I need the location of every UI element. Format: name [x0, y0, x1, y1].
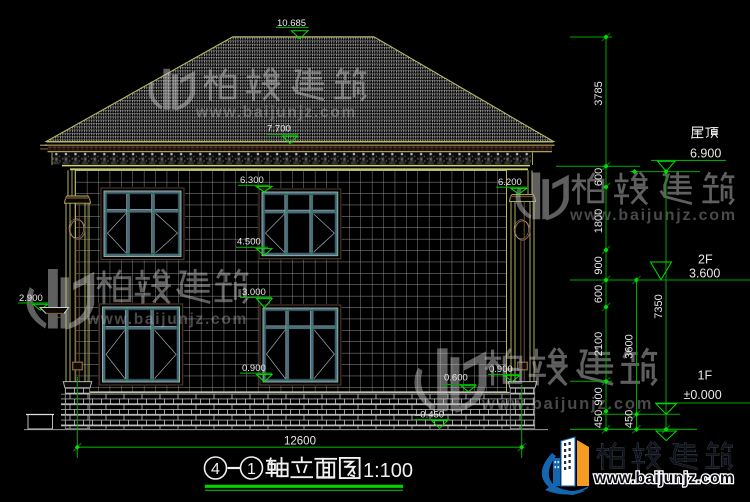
svg-text:7.700: 7.700 [267, 124, 291, 135]
svg-text:4: 4 [211, 461, 220, 478]
svg-text:0.600: 0.600 [444, 373, 468, 384]
svg-text:600: 600 [593, 168, 605, 186]
svg-text:6.300: 6.300 [240, 175, 264, 186]
svg-text:1: 1 [247, 461, 256, 478]
svg-text:–0.450: –0.450 [415, 410, 444, 421]
svg-text:www.baijunjz.com: www.baijunjz.com [195, 104, 357, 121]
svg-text:7350: 7350 [653, 294, 665, 318]
svg-text:450: 450 [624, 410, 636, 428]
svg-text:3.600: 3.600 [689, 267, 720, 281]
svg-text:1:100: 1:100 [363, 460, 413, 482]
svg-text:2100: 2100 [593, 332, 605, 356]
svg-text:4.500: 4.500 [237, 237, 261, 248]
svg-text:0.900: 0.900 [242, 363, 266, 374]
svg-text:3.000: 3.000 [242, 287, 266, 298]
svg-text:600: 600 [593, 285, 605, 303]
svg-text:www.baijunjz.com: www.baijunjz.com [593, 470, 734, 487]
svg-text:6.900: 6.900 [690, 147, 721, 161]
svg-text:3785: 3785 [593, 81, 605, 105]
svg-text:2F: 2F [698, 253, 713, 267]
svg-text:1F: 1F [698, 369, 713, 383]
svg-text:12600: 12600 [284, 436, 316, 448]
svg-text:3600: 3600 [624, 334, 636, 358]
svg-text:1800: 1800 [593, 209, 605, 233]
svg-text:6.200: 6.200 [498, 177, 522, 188]
svg-text:900: 900 [593, 256, 605, 274]
svg-text:0.900: 0.900 [489, 364, 513, 375]
svg-text:www.baijunjz.com: www.baijunjz.com [86, 311, 248, 328]
svg-text:900: 900 [593, 387, 605, 405]
svg-text:±0.000: ±0.000 [684, 388, 722, 402]
svg-text:450: 450 [593, 410, 605, 428]
